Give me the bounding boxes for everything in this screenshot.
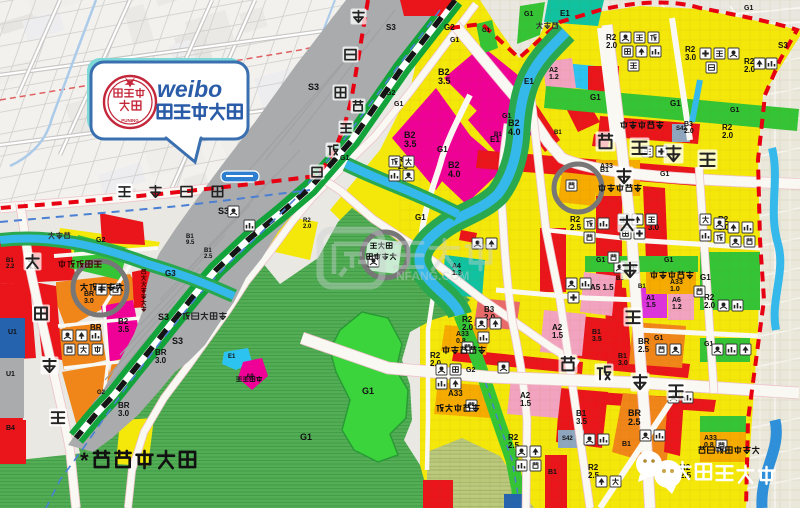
svg-text:2.0: 2.0 [722,131,734,140]
svg-text:S3: S3 [386,23,396,32]
svg-text:A5 1.5: A5 1.5 [590,283,614,292]
svg-text:B1: B1 [618,353,627,360]
svg-text:3.5: 3.5 [404,139,417,149]
svg-text:G2: G2 [444,23,455,32]
svg-text:B1: B1 [548,469,557,476]
svg-text:2.5: 2.5 [638,345,650,354]
svg-text:B4: B4 [6,425,15,432]
svg-text:A33: A33 [448,389,463,398]
svg-text:G1: G1 [654,335,663,342]
svg-text:3.5: 3.5 [118,325,130,334]
svg-text:S3: S3 [778,41,788,50]
svg-text:A33: A33 [456,331,469,338]
svg-text:G1: G1 [437,145,448,154]
svg-text:2.5: 2.5 [570,223,582,232]
svg-text:S42: S42 [676,126,687,132]
svg-text:B1: B1 [554,130,562,136]
svg-text:E1: E1 [490,135,500,144]
svg-text:3.0: 3.0 [155,356,167,365]
svg-text:2.0: 2.0 [704,301,716,310]
svg-text:G1: G1 [700,273,711,282]
svg-text:1.5: 1.5 [552,331,564,340]
svg-text:3.0: 3.0 [84,298,94,305]
svg-text:G1: G1 [450,37,459,44]
svg-text:G2: G2 [96,237,105,244]
svg-text:G1: G1 [362,386,374,396]
svg-text:G1: G1 [394,101,403,108]
svg-text:3.0: 3.0 [685,53,697,62]
svg-text:G1: G1 [596,257,605,264]
svg-text:G1: G1 [502,113,511,120]
svg-text:G2: G2 [97,390,106,396]
svg-text:4.0: 4.0 [448,169,461,179]
svg-text:9.5: 9.5 [186,240,195,246]
svg-text:3.0: 3.0 [618,360,628,367]
svg-text:G1: G1 [524,11,533,18]
svg-text:E1: E1 [560,9,570,18]
svg-text:S3: S3 [158,312,169,322]
svg-text:B1: B1 [592,329,601,336]
svg-text:1.5: 1.5 [646,302,656,309]
svg-text:G1: G1 [664,257,673,264]
svg-text:NFANG.COM: NFANG.COM [396,269,469,283]
svg-text:A33: A33 [670,279,683,286]
svg-text:U1: U1 [8,329,17,336]
svg-text:3.5: 3.5 [438,76,451,86]
svg-text:3.5: 3.5 [576,417,588,426]
svg-text:S3: S3 [308,82,319,92]
svg-text:G2: G2 [386,90,395,97]
svg-text:weibo: weibo [157,76,222,102]
svg-text:G3: G3 [165,269,176,278]
svg-text:A2: A2 [549,67,558,74]
svg-text:3.5: 3.5 [592,336,602,343]
svg-text:G1: G1 [730,107,739,114]
svg-text:0.8: 0.8 [704,442,714,449]
svg-text:2.0: 2.0 [606,41,618,50]
svg-text:2.0: 2.0 [462,323,474,332]
svg-text:1.2: 1.2 [672,304,682,311]
svg-text:*: * [80,448,89,473]
svg-text:B1: B1 [638,284,646,290]
svg-text:S3: S3 [218,206,229,216]
svg-text:G2: G2 [466,367,475,374]
svg-text:B1: B1 [622,441,631,448]
svg-text:E1: E1 [524,77,534,86]
svg-text:A33: A33 [704,435,717,442]
svg-text:G1: G1 [670,99,681,108]
svg-text:A6: A6 [672,297,681,304]
svg-text:A33: A33 [600,163,613,170]
svg-text:1.5: 1.5 [520,399,532,408]
svg-text:S42: S42 [562,436,573,442]
svg-text:3.0: 3.0 [118,409,130,418]
svg-text:G1: G1 [660,171,669,178]
svg-text:1.2: 1.2 [549,74,559,81]
svg-text:2.5: 2.5 [628,417,641,427]
svg-text:2.5: 2.5 [204,254,213,260]
svg-text:G1: G1 [482,28,491,34]
svg-text:BR: BR [84,291,94,298]
svg-text:A1: A1 [646,295,655,302]
svg-text:2.0: 2.0 [303,224,312,230]
svg-text:2.2: 2.2 [6,264,15,270]
svg-text:U1: U1 [6,371,15,378]
svg-text:E1: E1 [228,354,236,360]
svg-text:1.0: 1.0 [670,286,680,293]
svg-text:G1: G1 [590,93,601,102]
svg-text:PUNING: PUNING [121,118,139,123]
svg-text:G1: G1 [300,432,312,442]
svg-text:G1: G1 [340,155,349,162]
svg-text:G1: G1 [415,213,426,222]
svg-text:4.0: 4.0 [508,127,521,137]
svg-text:S3: S3 [172,336,183,346]
svg-text:G1: G1 [744,5,753,12]
